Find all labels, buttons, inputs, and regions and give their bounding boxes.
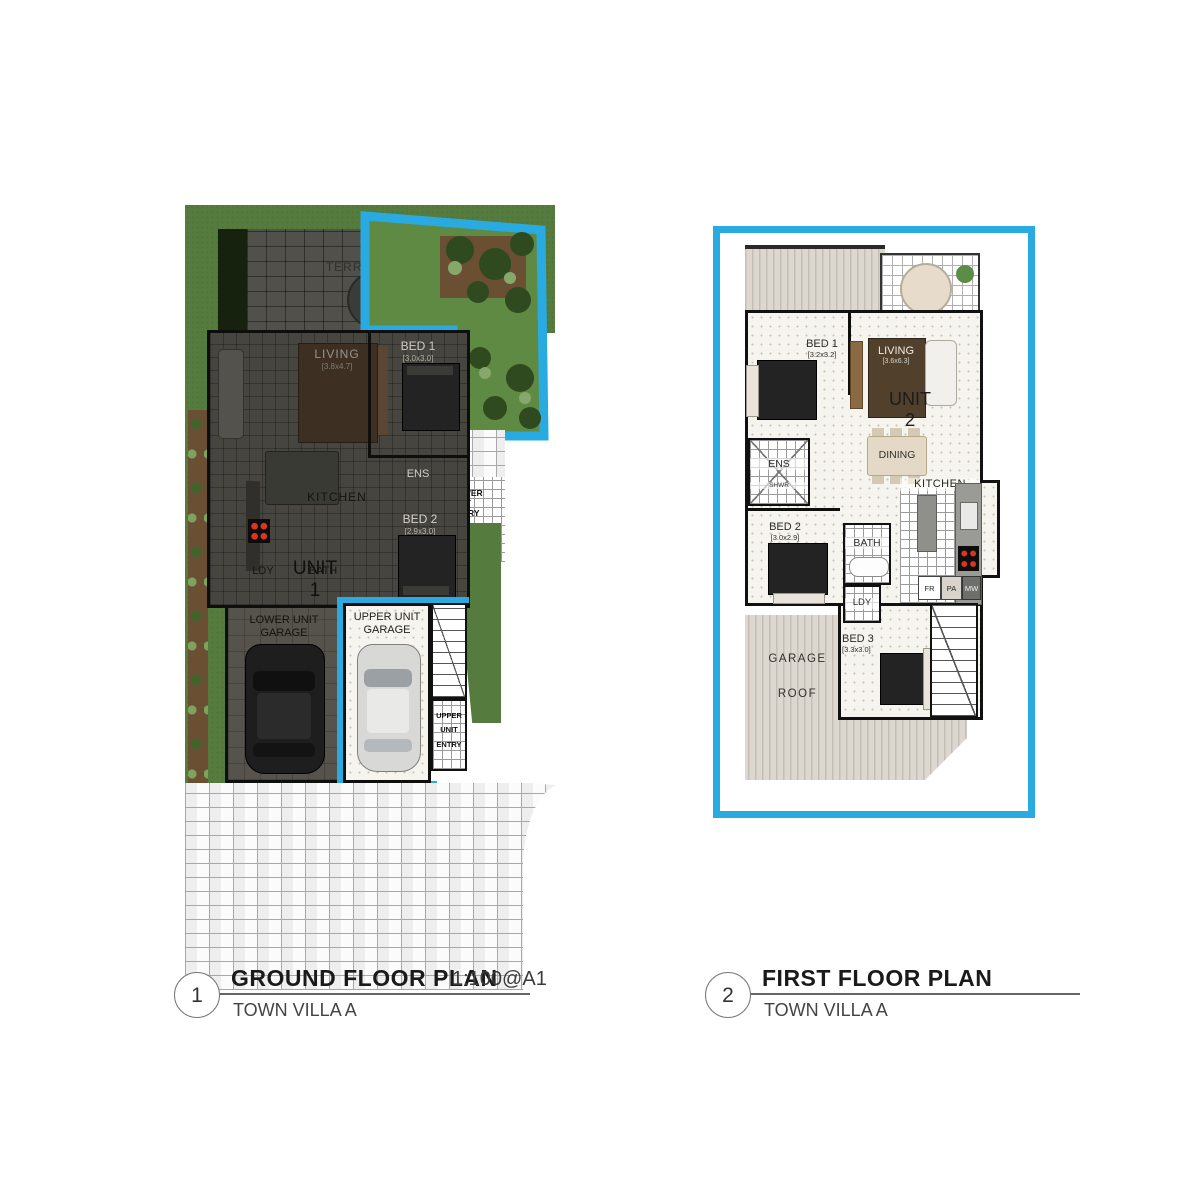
garden-bed-strip xyxy=(188,410,208,793)
laundry-room: LDY xyxy=(843,585,881,623)
bath-label-ff: BATH xyxy=(845,537,889,549)
first-floor-plan: BALCONY [3.6 x 2.8] GARAGE ROOF BED 1 [3… xyxy=(713,226,1035,818)
ens-label-ff: ENS xyxy=(750,458,808,470)
upper-unit-garage: UPPER UNIT GARAGE xyxy=(343,603,431,783)
dining-table-ff: DINING xyxy=(867,436,927,476)
garage-roof-label-2: ROOF xyxy=(755,688,840,701)
balcony-table xyxy=(900,263,952,315)
ensuite-ff: ENS SHWR xyxy=(748,438,810,506)
car-windshield xyxy=(253,671,315,691)
bed2-label-gf: BED 2 [2.9x3.0] xyxy=(370,513,470,536)
roof-strip xyxy=(745,245,885,311)
ldy-label-gf: LDY xyxy=(240,565,286,578)
balcony-plant xyxy=(956,265,974,283)
kitchen-label-gf: KITCHEN xyxy=(282,491,392,505)
car-windshield xyxy=(364,669,412,687)
chair xyxy=(890,428,902,436)
living-label-ff: LIVING [3.6x6.3] xyxy=(868,345,924,366)
lower-garage-label: LOWER UNIT GARAGE xyxy=(228,614,340,639)
cooktop-gf xyxy=(248,519,270,543)
bed xyxy=(757,360,817,420)
fridge: FR xyxy=(918,576,941,600)
gf-plan-number: 1 xyxy=(174,972,220,1018)
bath-room: BATH xyxy=(843,523,891,585)
kitchen-counter-ff xyxy=(917,495,937,552)
microwave: MW xyxy=(962,576,981,600)
car-dark xyxy=(245,644,325,774)
gf-plan-scale: 1:100@A1 xyxy=(452,968,547,991)
chair xyxy=(908,428,920,436)
lower-unit-garage: LOWER UNIT GARAGE xyxy=(225,605,343,783)
car-roof xyxy=(367,689,409,733)
gf-title-line xyxy=(176,993,530,995)
tv-sideboard xyxy=(850,341,863,409)
bed1-label: BED 1 [3.0x3.0] xyxy=(373,340,463,363)
wall xyxy=(745,508,840,511)
bed2-label-ff: BED 2 [3.0x2.9] xyxy=(750,521,820,542)
upper-unit-entry-label: UPPER UNIT ENTRY xyxy=(433,709,465,752)
staircase-ff xyxy=(930,603,978,718)
ff-plan-title: FIRST FLOOR PLAN xyxy=(762,965,992,992)
ff-plan-number: 2 xyxy=(705,972,751,1018)
bed xyxy=(768,543,828,595)
chair xyxy=(872,428,884,436)
bed-pillow xyxy=(407,366,453,375)
site-curve-upper xyxy=(485,725,557,785)
bed-pillow xyxy=(746,365,759,417)
driveway xyxy=(185,783,557,990)
sofa xyxy=(218,349,244,439)
car-roof xyxy=(257,693,311,739)
bed3-label: BED 3 [3.3x3.0] xyxy=(842,633,902,654)
lower-unit-dwelling: LIVING [3.8x4.7] BED 1 [3.0x3.0] UNIT 1 … xyxy=(207,330,470,608)
ens-label-gf: ENS xyxy=(388,468,448,481)
sink xyxy=(960,502,978,530)
ff-title-line xyxy=(707,993,1080,995)
pantry: PA xyxy=(941,576,962,600)
ff-plan-subtitle: TOWN VILLA A xyxy=(764,1000,888,1021)
garage-roof-label-1: GARAGE xyxy=(755,653,840,666)
car-rear-window xyxy=(253,743,315,757)
bed xyxy=(402,363,460,431)
ground-floor-plan: TERRACE LOWER UNIT ENTRY xyxy=(185,205,565,990)
gf-plan-subtitle: TOWN VILLA A xyxy=(233,1000,357,1021)
chair xyxy=(872,476,884,484)
bed xyxy=(880,653,924,705)
bed-pillow xyxy=(403,586,449,595)
ldy-label-ff: LDY xyxy=(845,598,879,609)
wall xyxy=(368,455,470,458)
upper-unit-entry-paving: UPPER UNIT ENTRY xyxy=(431,699,467,771)
bathtub xyxy=(849,557,889,577)
kitchen-bump xyxy=(980,480,1000,578)
bed-pillow xyxy=(773,593,825,604)
unit2-label: UNIT 2 xyxy=(870,389,950,430)
car-light xyxy=(357,644,421,772)
bed xyxy=(398,535,456,599)
staircase-gf xyxy=(431,603,467,699)
floor-plan-sheet: TERRACE LOWER UNIT ENTRY xyxy=(0,0,1200,1200)
dining-label: DINING xyxy=(868,449,926,461)
upper-garage-label: UPPER UNIT GARAGE xyxy=(346,611,428,636)
cooktop-ff xyxy=(958,546,979,571)
car-rear-window xyxy=(364,739,412,752)
living-label: LIVING [3.8x4.7] xyxy=(298,348,376,371)
shwr-label: SHWR xyxy=(750,482,808,489)
bath-label-gf: BATH xyxy=(295,565,351,578)
